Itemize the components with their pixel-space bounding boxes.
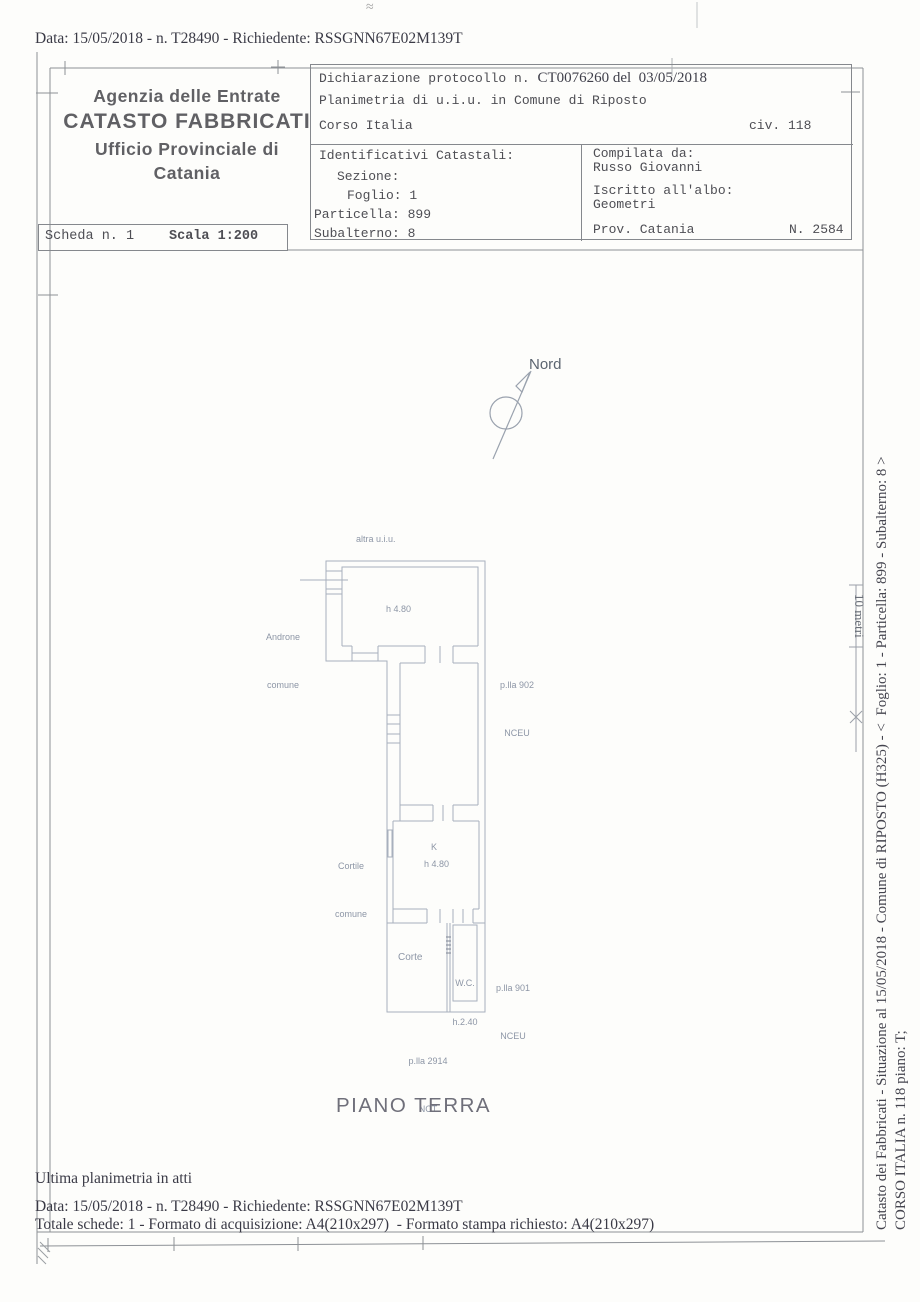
north-label: Nord	[529, 356, 562, 373]
plan-label-plla902-line2: NCEU	[493, 725, 541, 741]
planimetria-line: Planimetria di u.i.u. in Comune di Ripos…	[319, 93, 647, 108]
compiler-reg-number: N. 2584	[789, 222, 844, 237]
civic-number: civ. 118	[749, 118, 811, 133]
office-header: Agenzia delle Entrate CATASTO FABBRICATI…	[58, 86, 316, 184]
north-arrow-icon	[490, 371, 531, 459]
floor-title: PIANO TERRA	[336, 1094, 491, 1118]
plan-label-plla901-line2: NCEU	[489, 1028, 537, 1044]
scan-mark: ≈	[366, 0, 374, 16]
protocol-prefix: Dichiarazione protocollo n.	[319, 71, 537, 86]
scheda-scale: Scala 1:200	[169, 229, 258, 244]
street-line: Corso Italia	[319, 118, 413, 133]
footer-data-line: Data: 15/05/2018 - n. T28490 - Richieden…	[35, 1198, 463, 1216]
plan-label-androne-line1: Androne	[258, 629, 308, 645]
plan-label-kitchen: K	[431, 839, 437, 855]
catastali-sezione: Sezione:	[337, 169, 399, 184]
catastali-particella: Particella: 899	[314, 207, 431, 222]
ruler-label: 10 metri	[851, 594, 867, 638]
plan-label-cortile-line2: comune	[328, 906, 374, 922]
office-agency: Agenzia delle Entrate	[58, 86, 316, 107]
plan-label-androne: Androne comune	[258, 597, 308, 709]
box-divider-h	[311, 144, 853, 145]
catastali-foglio: Foglio: 1	[347, 188, 417, 203]
request-header-line: Data: 15/05/2018 - n. T28490 - Richieden…	[35, 30, 463, 48]
side-text-line1: Catasto dei Fabbricati - Situazione al 1…	[874, 456, 891, 1230]
plan-label-plla2914-line1: p.lla 2914	[398, 1053, 458, 1069]
catastali-subalterno: Subalterno: 8	[314, 226, 415, 241]
plan-label-kitchen-height: h 4.80	[424, 856, 449, 872]
plan-label-plla901-line1: p.lla 901	[489, 980, 537, 996]
document-page: { "page": { "scan_mark": "≈", "header_li…	[0, 0, 920, 1302]
office-city: Catania	[58, 163, 316, 184]
plan-label-height-top: h 4.80	[386, 601, 411, 617]
office-catasto: CATASTO FABBRICATI	[58, 110, 316, 134]
plan-label-cortile-line1: Cortile	[328, 858, 374, 874]
plan-label-plla902: p.lla 902 NCEU	[493, 645, 541, 757]
compiler-albo-label: Iscritto all'albo:	[593, 183, 733, 198]
plan-label-corte: Corte	[398, 950, 422, 966]
footer-totale: Totale schede: 1 - Formato di acquisizio…	[35, 1216, 654, 1234]
protocol-number: CT0076260 del 03/05/2018	[537, 70, 707, 86]
plan-label-altra-uiu: altra u.i.u.	[356, 531, 396, 547]
plan-label-cortile: Cortile comune	[328, 826, 374, 938]
plan-label-wc-line1: W.C.	[447, 977, 483, 990]
plan-label-plla901: p.lla 901 NCEU	[489, 948, 537, 1060]
compiler-albo: Geometri	[593, 197, 655, 212]
scheda-number: Scheda n. 1	[45, 229, 134, 244]
compiler-name: Russo Giovanni	[593, 160, 702, 175]
compiler-title: Compilata da:	[593, 146, 694, 161]
protocol-line: Dichiarazione protocollo n. CT0076260 de…	[319, 69, 707, 87]
catastali-title: Identificativi Catastali:	[319, 148, 514, 163]
compiler-prov: Prov. Catania	[593, 222, 694, 237]
plan-label-androne-line2: comune	[258, 677, 308, 693]
box-divider-v	[581, 144, 582, 241]
floor-plan	[300, 561, 485, 1012]
footer-ultima: Ultima planimetria in atti	[35, 1170, 192, 1188]
declaration-box: Dichiarazione protocollo n. CT0076260 de…	[310, 64, 852, 240]
office-ufficio: Ufficio Provinciale di	[58, 139, 316, 160]
plan-label-plla902-line1: p.lla 902	[493, 677, 541, 693]
scheda-box: Scheda n. 1 Scala 1:200	[38, 224, 288, 251]
side-text-line2: CORSO ITALIA n. 118 piano: T;	[893, 1030, 910, 1230]
